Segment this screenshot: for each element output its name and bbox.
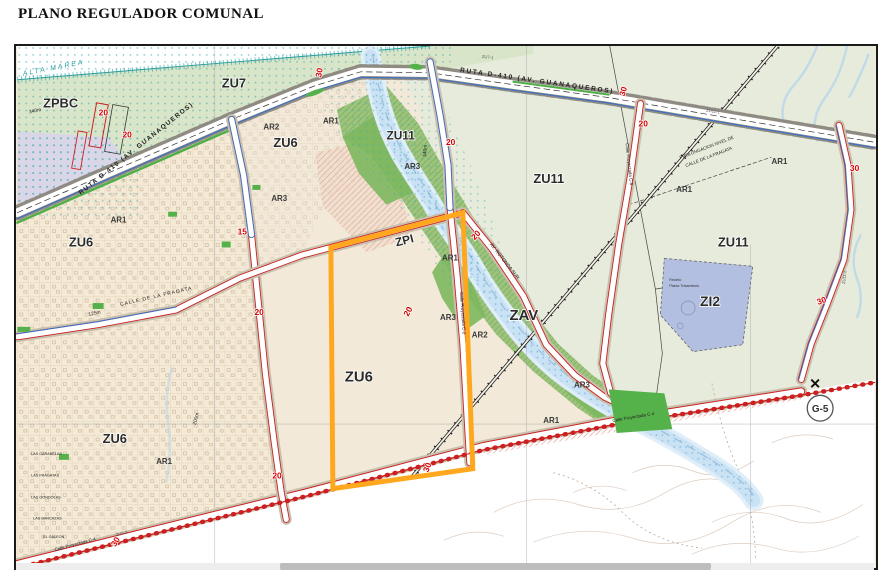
area-label: AR1	[323, 116, 339, 125]
zone-label: ZU11	[533, 171, 564, 186]
road-width-number: 20	[122, 129, 132, 139]
zone-label: ZI2	[700, 293, 720, 309]
zone-label: ZU6	[273, 135, 297, 150]
horizontal-scrollbar[interactable]	[16, 563, 874, 570]
road-width-number: 20	[254, 307, 264, 317]
street-label: LAS GONDOLAS	[31, 496, 61, 500]
area-label: AR1	[442, 253, 458, 262]
page-title: PLANO REGULADOR COMUNAL	[18, 6, 264, 23]
map-canvas: ✕ G-5 ZPBCZU7ZU6ZU6ZU6ZU6ZU11ZU11ZU11ZI2…	[16, 46, 876, 568]
street-label: EL GALEON	[43, 535, 64, 539]
road-width-number: 20	[99, 107, 109, 117]
area-label: AR3	[271, 194, 287, 203]
area-label: AR3	[574, 380, 590, 389]
zone-label: ZU6	[345, 369, 373, 385]
street-label: Planta Tratamiento	[669, 284, 699, 288]
area-label: AR1	[111, 216, 127, 225]
road-width-number: 20	[446, 137, 456, 147]
horizontal-scrollbar-thumb[interactable]	[280, 563, 711, 570]
road-width-number: 30	[850, 163, 860, 173]
street-label: LAS BARCAZAS	[33, 516, 62, 520]
area-label: AR2	[263, 122, 279, 131]
zone-label: ZU7	[222, 76, 246, 91]
area-label: AR1	[676, 185, 692, 194]
zone-label: ZAV	[510, 308, 539, 324]
street-label: LAS FRAGATAS	[31, 474, 59, 478]
street-label: 340m	[422, 145, 429, 158]
area-label: AR3	[440, 313, 456, 322]
map-viewport: ✕ G-5 ZPBCZU7ZU6ZU6ZU6ZU6ZU11ZU11ZU11ZI2…	[14, 44, 878, 570]
zone-label: ZU6	[103, 431, 127, 446]
area-label: AR2	[472, 331, 488, 340]
grid-reference-label: G-5	[812, 404, 829, 415]
zone-label: ZPBC	[43, 96, 78, 111]
zone-label: ZU11	[718, 234, 749, 249]
road-width-number: 20	[639, 118, 649, 128]
street-label: Recinto	[669, 278, 681, 282]
street-label: LAS CARABELAS	[31, 452, 62, 456]
road-width-number: 15	[238, 227, 248, 237]
zone-label: ZU6	[69, 234, 93, 249]
boundary-x-mark: ✕	[809, 375, 821, 391]
road-width-number: 20	[272, 471, 282, 481]
area-label: AR1	[772, 157, 788, 166]
zone-label: ZU11	[386, 128, 415, 142]
area-label: AR1	[543, 416, 559, 425]
area-label: AR1	[156, 457, 172, 466]
area-label: AR3	[404, 162, 420, 171]
